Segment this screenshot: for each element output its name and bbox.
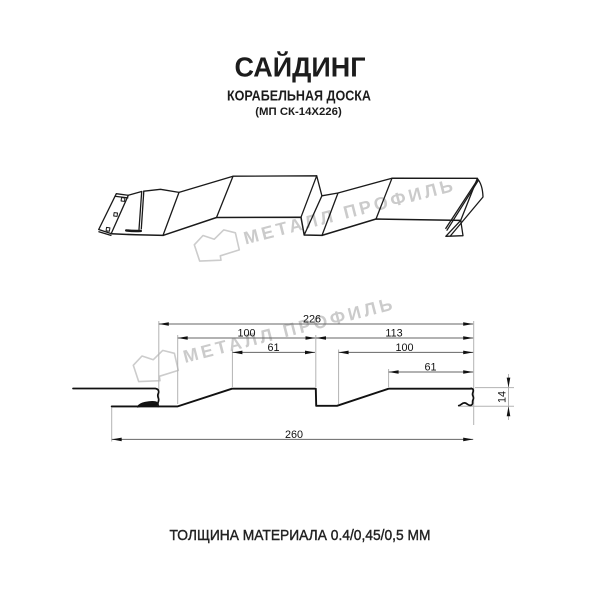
svg-text:(МП СК-14Х226): (МП СК-14Х226): [255, 106, 342, 118]
svg-text:113: 113: [385, 327, 402, 339]
svg-text:14: 14: [497, 391, 509, 403]
svg-text:61: 61: [267, 342, 279, 354]
svg-text:САЙДИНГ: САЙДИНГ: [235, 50, 366, 82]
svg-text:100: 100: [237, 327, 255, 339]
svg-text:260: 260: [285, 429, 303, 441]
svg-text:ТОЛЩИНА МАТЕРИАЛА 0.4/0,45/0,5: ТОЛЩИНА МАТЕРИАЛА 0.4/0,45/0,5 ММ: [170, 528, 431, 544]
svg-text:100: 100: [395, 342, 413, 354]
svg-text:КОРАБЕЛЬНАЯ ДОСКА: КОРАБЕЛЬНАЯ ДОСКА: [227, 87, 371, 104]
svg-text:61: 61: [424, 362, 436, 374]
svg-text:226: 226: [303, 314, 321, 326]
